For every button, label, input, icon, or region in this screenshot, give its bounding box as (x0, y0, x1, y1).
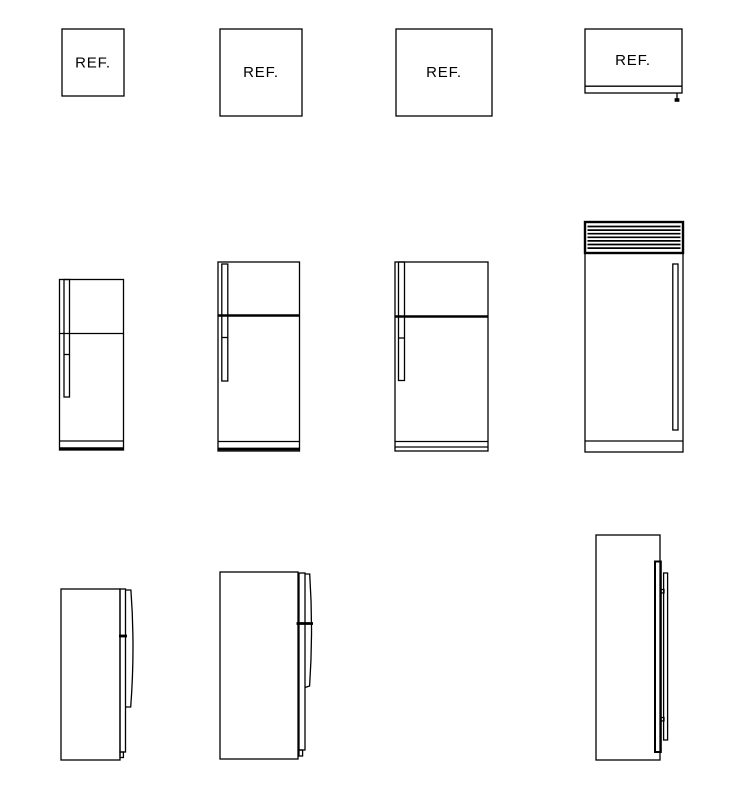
handle-bracket-bottom (661, 718, 664, 721)
plan-view-1: REF. (62, 29, 124, 96)
refrigerator-blocks-drawing: REF. REF. REF. REF. (0, 0, 755, 789)
plan-view-2: REF. (220, 29, 302, 116)
door-panel (655, 562, 661, 753)
cabinet-outline (585, 222, 683, 452)
cabinet-outline (61, 589, 120, 760)
handle-bar (664, 573, 668, 740)
ref-label: REF. (615, 52, 651, 69)
door-handle-bar (673, 264, 678, 430)
ref-label: REF. (75, 55, 111, 72)
door-bottom-step (120, 752, 123, 758)
handle-bracket-top (661, 590, 664, 593)
side-view-2 (220, 572, 313, 759)
front-view-2 (218, 262, 300, 451)
door-handle (222, 264, 228, 381)
cabinet-outline (395, 262, 488, 451)
door-bottom-step (299, 750, 303, 756)
cabinet-outline (218, 262, 300, 451)
side-view-3 (596, 535, 668, 760)
ref-label: REF. (426, 64, 462, 81)
door-front-arc (305, 574, 312, 688)
cabinet-outline (220, 572, 298, 759)
front-view-4 (585, 222, 683, 452)
ref-label: REF. (243, 64, 279, 81)
door-handle (399, 262, 405, 381)
side-view-1 (61, 589, 133, 760)
door-panel (120, 589, 126, 752)
front-view-3 (395, 262, 488, 451)
cad-drawing-canvas: REF. REF. REF. REF. (0, 0, 755, 789)
plan-view-4: REF. (585, 29, 682, 102)
door-front-arc (126, 590, 134, 707)
cabinet-outline (596, 535, 660, 760)
door-handle-knob (675, 98, 680, 102)
door-handle (64, 280, 70, 398)
plan-view-3: REF. (396, 29, 492, 116)
front-view-1 (60, 280, 124, 451)
door-panel (299, 573, 305, 750)
